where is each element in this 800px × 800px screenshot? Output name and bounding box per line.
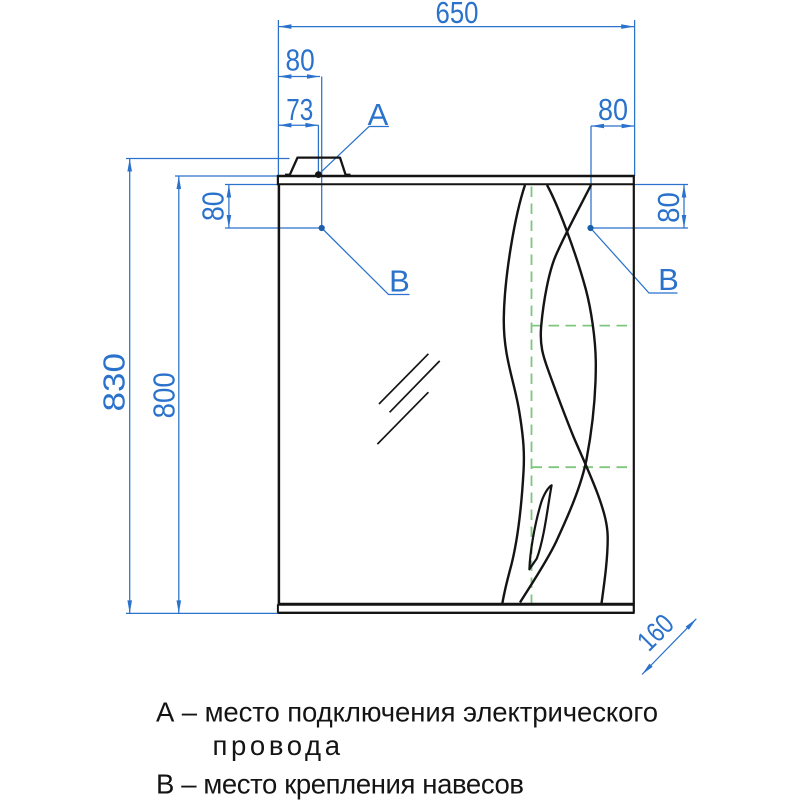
- svg-text:80: 80: [286, 43, 315, 78]
- svg-text:80: 80: [196, 192, 231, 222]
- svg-text:650: 650: [436, 0, 479, 30]
- svg-text:80: 80: [598, 92, 628, 127]
- svg-text:830: 830: [96, 353, 131, 411]
- svg-text:800: 800: [147, 372, 182, 418]
- svg-text:А: А: [368, 97, 389, 132]
- svg-text:А – место подключения электрич: А – место подключения электрического: [156, 697, 658, 728]
- svg-text:В – место крепления навесов: В – место крепления навесов: [156, 769, 524, 800]
- svg-text:73: 73: [286, 92, 313, 127]
- svg-text:80: 80: [651, 192, 686, 223]
- svg-text:В: В: [658, 262, 679, 297]
- svg-text:В: В: [389, 264, 410, 299]
